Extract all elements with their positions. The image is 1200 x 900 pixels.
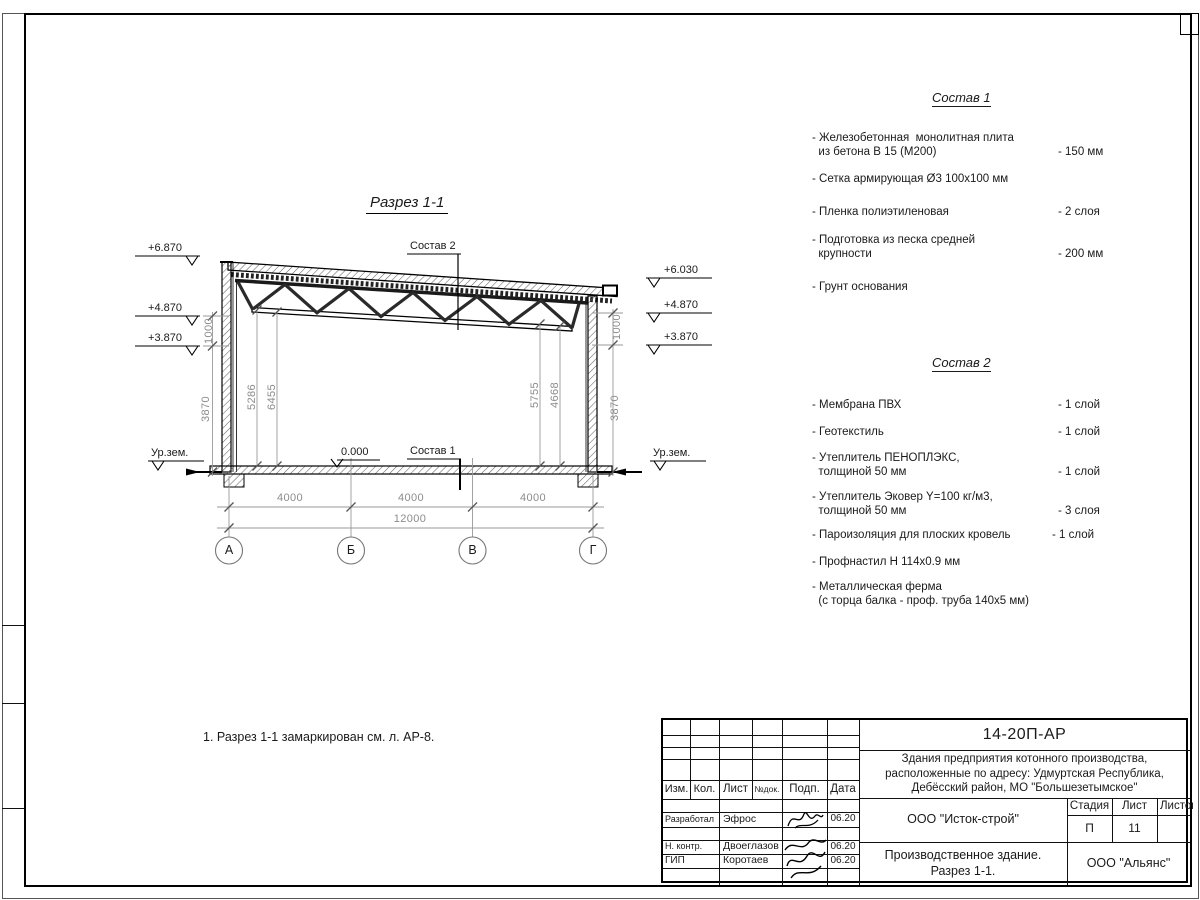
axis-bubbles [216,537,607,564]
item-name: - Металлическая ферма (с торца балка - п… [812,580,1102,609]
tb-role: Н. контр. [665,840,719,854]
sostav-item: - Пароизоляция для плоских кровель - 1 с… [812,528,1142,542]
tb-role: ГИП [665,854,719,868]
sostav-item: - Металлическая ферма (с торца балка - п… [812,580,1142,609]
callout-sostav1: Состав 1 [410,445,456,457]
elevation-label: +3.870 [134,332,196,344]
span-dim: 4000 [503,492,563,504]
tb-object-name: Производственное здание. Разрез 1-1. [859,842,1067,885]
vertical-dim: 6455 [266,377,278,417]
section-drawing [0,0,760,600]
right-wall [586,296,597,472]
item-value: - 2 слоя [1058,205,1100,219]
tb-role: Разработал [665,812,719,827]
span-dim: 4000 [381,492,441,504]
item-value: - 1 слой [1058,425,1100,439]
axis-label: Б [338,537,365,564]
tb-date: 06.20 [827,840,859,854]
vertical-dim: 3870 [200,389,212,429]
item-value: - 1 слой [1052,528,1094,542]
elevation-label: +4.870 [134,302,196,314]
tb-col-izm: Изм. [663,780,690,799]
sostav1-title: Состав 1 [932,90,991,107]
margin-cell-line [2,808,24,809]
tb-col-list: Лист [719,780,752,799]
total-dim: 12000 [375,513,445,525]
vertical-dim: 4668 [549,375,561,415]
tb-sheet-value: 11 [1112,815,1157,842]
tb-company: ООО "Исток-строй" [859,798,1067,842]
tb-date: 06.20 [827,854,859,868]
item-name: - Сетка армирующая Ø3 100x100 мм [812,172,1054,186]
item-name: - Пароизоляция для плоских кровель [812,528,1048,542]
ground-level-label-right: Ур.зем. [653,447,690,459]
tb-col-data: Дата [827,780,859,799]
tb-name: Эфрос [723,812,782,827]
vertical-dim: 1000 [611,307,623,347]
elevation-label: +6.030 [650,264,712,276]
sostav-item: - Профнастил Н 114х0.9 мм [812,555,1142,569]
vertical-dim: 1000 [203,311,215,351]
section-title: Разрез 1-1 [366,194,448,214]
tb-stage-label: Стадия [1067,798,1112,815]
item-name: - Утеплитель Эковер Y=100 кг/м3, толщино… [812,490,1054,519]
item-value: - 1 слой [1058,465,1100,479]
item-name: - Железобетонная монолитная плита из бет… [812,131,1054,160]
elevation-label: +4.870 [650,299,712,311]
sheet-note: 1. Разрез 1-1 замаркирован см. л. АР-8. [203,730,434,744]
sostav-item: - Мембрана ПВХ - 1 слой [812,398,1142,412]
sostav-item: - Геотекстиль - 1 слой [812,425,1142,439]
signature [785,806,825,832]
ground-level-label-left: Ур.зем. [151,447,188,459]
sostav-item: - Утеплитель ПЕНОПЛЭКС, толщиной 50 мм -… [812,451,1142,480]
edge-beam [603,286,617,296]
tb-date: 06.20 [827,812,859,827]
tb-name: Коротаев [723,854,782,868]
sostav2-title: Состав 2 [932,355,991,372]
vertical-dim: 5286 [246,377,258,417]
vertical-dim: 5755 [529,375,541,415]
item-name: - Грунт основания [812,280,1054,294]
item-name: - Мембрана ПВХ [812,398,1054,412]
sostav-item: - Подготовка из песка средней крупности … [812,233,1142,262]
axis-label: Г [580,537,607,564]
tb-col-podp: Подп. [782,780,827,799]
elevation-label: +6.870 [134,242,196,254]
item-value: - 1 слой [1058,398,1100,412]
tb-stage-value: П [1067,815,1112,842]
left-wall [220,262,237,472]
sostav-item: - Сетка армирующая Ø3 100x100 мм [812,172,1142,186]
item-name: - Профнастил Н 114х0.9 мм [812,555,1054,569]
axis-label: В [459,537,486,564]
tb-contractor: ООО "Альянс" [1067,842,1190,885]
tb-name: Двоеглазов [723,840,782,854]
drawing-sheet: Разрез 1-1 Состав 2 Состав 1 0.000 Ур.зе… [0,0,1200,900]
item-value: - 200 мм [1058,247,1103,261]
signature [781,836,829,882]
vertical-dim: 3870 [609,388,621,428]
tb-sheet-label: Лист [1112,798,1157,815]
corner-stamp-box [1180,13,1199,35]
tb-col-kol: Кол. [690,780,719,799]
item-value: - 3 слоя [1058,504,1100,518]
sostav-item: - Утеплитель Эковер Y=100 кг/м3, толщино… [812,490,1142,519]
item-name: - Утеплитель ПЕНОПЛЭКС, толщиной 50 мм [812,451,1054,480]
tb-doc-number: 14-20П-АР [859,720,1190,750]
axis-label: А [216,537,243,564]
sostav-item: - Грунт основания [812,280,1142,294]
span-dim: 4000 [260,492,320,504]
tb-col-ndok: №док. [752,780,782,799]
tb-sheets-label: Листов [1157,798,1193,815]
margin-cell-line [2,625,24,626]
tb-sheets-value [1157,815,1190,842]
title-block: Изм. Кол. Лист №док. Подп. Дата Разработ… [661,718,1188,883]
callout-sostav2: Состав 2 [410,240,456,252]
sostav-item: - Железобетонная монолитная плита из бет… [812,131,1142,160]
level-zero-label: 0.000 [341,446,369,458]
sostav-item: - Пленка полиэтиленовая - 2 слоя [812,205,1142,219]
elevation-label: +3.870 [650,331,712,343]
roof-slab [228,262,617,301]
item-name: - Геотекстиль [812,425,1054,439]
item-value: - 150 мм [1058,145,1103,159]
tb-project-name: Здания предприятия котонного производств… [859,750,1190,798]
margin-cell-line [2,703,24,704]
item-name: - Пленка полиэтиленовая [812,205,1054,219]
item-name: - Подготовка из песка средней крупности [812,233,1054,262]
